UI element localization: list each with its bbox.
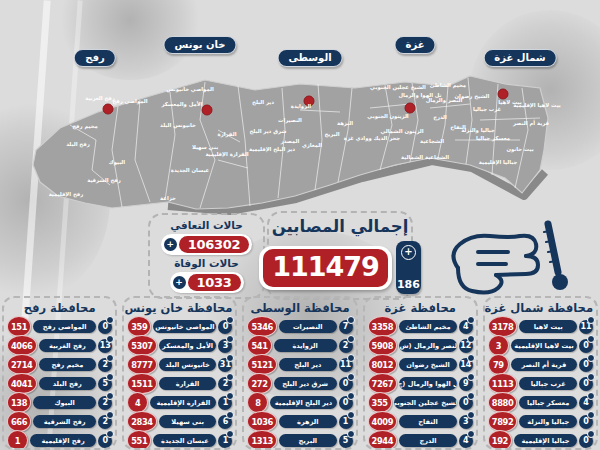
area-total-count: 8 [247,392,268,413]
area-new-badge: 4 [579,396,593,410]
area-new-badge: 2 [218,377,232,391]
area-name-pill: قرية أم النصر [511,358,577,371]
pin-governorate-label: خان يونس [164,36,237,54]
area-name-pill: شرق دير البلح [274,377,337,390]
area-name-pill: الدرج [399,434,457,447]
pin-governorate-label: شمال غزة [483,49,556,67]
area-name-pill: بيت لاهيا [519,320,577,333]
area-total-count: 192 [488,430,512,450]
area-new-badge: 0 [579,358,593,372]
area-name-pill: مخيم الشاطئ [399,320,457,333]
area-row: 11 دير البلح 5121 [247,355,352,374]
plus-circle-icon [587,411,595,419]
area-row: 3 التفاح 4009 [368,412,473,431]
total-infected-panel: إجمالي المصابين 111479 + 186 [267,211,413,300]
area-total-count: 2834 [127,411,157,432]
area-name-pill: الشيخ عجلين الجنوبي [394,396,457,409]
area-total-count: 4066 [7,335,37,356]
plus-circle-icon [226,373,234,381]
area-new-badge: 0 [218,320,232,334]
area-total-count: 2944 [368,430,398,450]
area-row: 2 مخيم رفح 2714 [7,355,112,374]
area-new-badge: 5 [339,434,353,448]
area-new-badge: 6 [218,415,232,429]
area-new-badge: 2 [98,358,112,372]
governorate-column-4: محافظة شمال غزة 11 بيت لاهيا 3178 0 بيت … [483,296,598,450]
plus-circle-icon [226,411,234,419]
area-new-badge: 0 [579,434,593,448]
deaths-count: 1033 [188,274,241,291]
area-total-count: 1 [7,430,28,450]
recovered-icon: + [164,238,177,251]
area-name-pill: بني سهيلا [159,415,217,428]
area-new-badge: 5 [98,377,112,391]
area-row: 0 جباليا الإقليمية 192 [488,431,593,450]
area-row: 31 خانيونس البلد 8777 [127,355,232,374]
area-new-badge: 1 [218,396,232,410]
recovered-label: حالات التعافي [170,219,243,231]
area-name-pill: البريج [279,434,337,447]
area-new-badge: 12 [459,339,473,353]
area-row: 2 القرارة 1511 [127,374,232,393]
total-infected-label: إجمالي المصابين [272,216,409,238]
area-total-count: 4 [127,392,148,413]
area-row: 13 رفح الغربية 4066 [7,336,112,355]
area-total-count: 4041 [7,373,37,394]
area-name-pill: النصر والرمال (ش) [399,339,457,352]
area-row: 2 الزوايدة 541 [247,336,352,355]
plus-circle-icon [587,354,595,362]
area-new-badge: 3 [218,339,232,353]
area-new-badge: 1 [218,434,232,448]
plus-circle-icon: + [401,245,416,260]
area-row: 2 البيوك 138 [7,393,112,412]
area-new-badge: 2 [339,339,353,353]
area-name-pill: القرارة [159,377,217,390]
area-name-pill: جباليا والنزلة [519,415,577,428]
plus-circle-icon [347,373,355,381]
plus-circle-icon [347,335,355,343]
area-row: 0 جباليا والنزلة 7892 [488,412,593,431]
governorate-column-title: محافظة شمال غزة [488,300,593,317]
area-new-badge: 4 [459,434,473,448]
area-total-count: 5307 [127,335,157,356]
area-total-count: 79 [488,354,509,375]
plus-circle-icon [347,316,355,324]
pin-governorate-label: رفح [74,49,116,67]
plus-circle-icon [106,354,114,362]
area-name-pill: الأمل والمعسكر [159,339,217,352]
area-name-pill: تل الهوا والرمال (ج) [399,377,457,390]
area-total-count: 138 [7,392,31,413]
total-infected-value-wrap: 111479 [259,246,392,290]
area-row: 0 الشيخ عجلين الجنوبي 355 [368,393,473,412]
area-name-pill: رفح الغربية [39,339,97,352]
area-row: 0 رفح الإقليمية 1 [7,431,112,450]
total-new-count: 186 [397,278,420,291]
plus-circle-icon [226,335,234,343]
governorate-column-title: محافظة غزة [368,300,473,317]
area-row: 6 بني سهيلا 2834 [127,412,232,431]
area-new-badge: 14 [459,358,473,372]
plus-circle-icon [467,392,475,400]
area-name-pill: الزهرة [279,415,337,428]
area-total-count: 7892 [488,411,518,432]
area-total-count: 7267 [368,373,398,394]
area-total-count: 355 [368,392,392,413]
area-total-count: 8777 [127,354,157,375]
area-name-pill: رفح الإقليمية [30,434,96,447]
area-row: 14 الشيخ رضوان 8012 [368,355,473,374]
governorate-column-title: محافظة رفح [7,300,112,317]
area-name-pill: دير البلح الإقليمية [270,396,336,409]
area-new-badge: 1 [339,415,353,429]
plus-circle-icon [587,373,595,381]
area-row: 12 النصر والرمال (ش) 5908 [368,336,473,355]
area-total-count: 541 [247,335,271,356]
area-name-pill: النصيرات [279,320,337,333]
plus-circle-icon [587,392,595,400]
area-name-pill: عبسان الجديدة [153,434,216,447]
area-row: 2 رفح الشرقية 666 [7,412,112,431]
area-row: 0 شرق دير البلح 272 [247,374,352,393]
area-row: 9 تل الهوا والرمال (ج) 7267 [368,374,473,393]
area-row: 1 القرارة الإقليمية 4 [127,393,232,412]
area-row: 1 عبسان الجديدة 551 [127,431,232,450]
plus-circle-icon [106,373,114,381]
total-new-badge: + 186 [396,241,421,294]
area-name-pill: البيوك [33,396,96,409]
plus-circle-icon [467,316,475,324]
area-total-count: 551 [127,430,151,450]
area-row: 11 بيت لاهيا 3178 [488,317,593,336]
plus-circle-icon [106,392,114,400]
area-row: 4 معسكر جباليا 8880 [488,393,593,412]
governorate-column-title: محافظة خان يونس [127,300,232,317]
governorate-column-title: محافظة الوسطى [247,300,352,317]
area-total-count: 3178 [488,316,518,337]
area-row: 0 غرب جباليا 1113 [488,374,593,393]
pin-governorate-label: غزة [395,36,436,54]
hand-thermometer-icon [420,210,570,305]
plus-circle-icon [587,335,595,343]
area-total-count: 1113 [488,373,518,394]
area-row: 0 قرية أم النصر 79 [488,355,593,374]
area-name-pill: خانيونس البلد [159,358,217,371]
area-row: 4 الدرج 2944 [368,431,473,450]
area-new-badge: 2 [98,396,112,410]
area-total-count: 1313 [247,430,277,450]
plus-circle-icon [106,335,114,343]
governorate-column-3: محافظة غزة 4 مخيم الشاطئ 3358 12 النصر و… [363,296,478,450]
area-total-count: 359 [127,316,151,337]
area-new-badge: 13 [98,339,112,353]
area-total-count: 2714 [7,354,37,375]
area-row: 0 المواصي رفح 151 [7,317,112,336]
plus-circle-icon [347,392,355,400]
area-new-badge: 4 [459,320,473,334]
recovered-value-wrap: 106302 + [161,234,252,255]
area-total-count: 8012 [368,354,398,375]
area-row: 0 المواصي خانيونس 359 [127,317,232,336]
area-row: 5 البريج 1313 [247,431,352,450]
area-new-badge: 0 [579,415,593,429]
area-new-badge: 0 [579,377,593,391]
area-name-pill: جباليا الإقليمية [514,434,577,447]
area-total-count: 151 [7,316,31,337]
area-total-count: 5346 [247,316,277,337]
plus-circle-icon [587,316,595,324]
area-name-pill: مخيم رفح [39,358,97,371]
governorate-column-2: محافظة الوسطى 7 النصيرات 5346 2 الزوايدة… [242,296,357,450]
area-name-pill: رفح البلد [39,377,97,390]
deaths-value-wrap: 1033 + [170,272,244,293]
area-new-badge: 2 [98,415,112,429]
total-infected-count: 111479 [263,249,388,287]
plus-circle-icon [347,411,355,419]
plus-circle-icon [467,373,475,381]
area-total-count: 5908 [368,335,398,356]
deaths-icon: + [173,276,186,289]
area-name-pill: المواصي رفح [33,320,96,333]
plus-circle-icon [106,430,114,438]
area-total-count: 666 [7,411,31,432]
pin-governorate-label: الوسطى [277,49,342,67]
area-row: 1 الزهرة 1036 [247,412,352,431]
area-new-badge: 0 [98,434,112,448]
area-new-badge: 0 [98,320,112,334]
area-new-badge: 0 [339,377,353,391]
plus-circle-icon [587,430,595,438]
area-new-badge: 9 [459,377,473,391]
area-total-count: 3358 [368,316,398,337]
area-new-badge: 3 [459,415,473,429]
area-name-pill: معسكر جباليا [519,396,577,409]
area-row: 0 بيت لاهيا الإقليمية 3 [488,336,593,355]
plus-circle-icon [467,411,475,419]
area-name-pill: الشيخ رضوان [399,358,457,371]
plus-circle-icon [226,316,234,324]
governorate-column-0: محافظة رفح 0 المواصي رفح 151 13 رفح الغر… [2,296,117,450]
area-name-pill: بيت لاهيا الإقليمية [511,339,577,352]
area-new-badge: 11 [579,320,593,334]
area-new-badge: 0 [579,339,593,353]
plus-circle-icon [467,335,475,343]
area-name-pill: دير البلح [279,358,337,371]
area-total-count: 1511 [127,373,157,394]
area-row: 0 دير البلح الإقليمية 8 [247,393,352,412]
area-new-badge: 31 [218,358,232,372]
area-row: 3 الأمل والمعسكر 5307 [127,336,232,355]
area-row: 7 النصيرات 5346 [247,317,352,336]
plus-circle-icon [347,430,355,438]
plus-circle-icon [226,430,234,438]
area-total-count: 4009 [368,411,398,432]
area-new-badge: 0 [459,396,473,410]
plus-circle-icon [226,392,234,400]
plus-circle-icon [106,316,114,324]
area-name-pill: رفح الشرقية [33,415,96,428]
area-name-pill: المواصي خانيونس [153,320,216,333]
area-row: 4 مخيم الشاطئ 3358 [368,317,473,336]
plus-circle-icon [226,354,234,362]
plus-circle-icon [347,354,355,362]
area-new-badge: 11 [339,358,353,372]
area-name-pill: غرب جباليا [519,377,577,390]
plus-circle-icon [106,411,114,419]
area-name-pill: القرارة الإقليمية [150,396,216,409]
plus-circle-icon [467,354,475,362]
area-total-count: 8880 [488,392,518,413]
area-total-count: 1036 [247,411,277,432]
area-name-pill: الزوايدة [274,339,337,352]
area-total-count: 5121 [247,354,277,375]
area-total-count: 272 [247,373,271,394]
area-name-pill: التفاح [399,415,457,428]
area-new-badge: 7 [339,320,353,334]
deaths-label: حالات الوفاة [174,257,239,269]
recovered-count: 106302 [179,236,249,253]
governorate-columns: محافظة رفح 0 المواصي رفح 151 13 رفح الغر… [2,296,598,450]
area-row: 5 رفح البلد 4041 [7,374,112,393]
governorate-column-1: محافظة خان يونس 0 المواصي خانيونس 359 3 … [122,296,237,450]
area-total-count: 3 [488,335,509,356]
area-new-badge: 0 [339,396,353,410]
plus-circle-icon [467,430,475,438]
recovery-death-panel: حالات التعافي 106302 + حالات الوفاة 1033… [148,213,265,299]
